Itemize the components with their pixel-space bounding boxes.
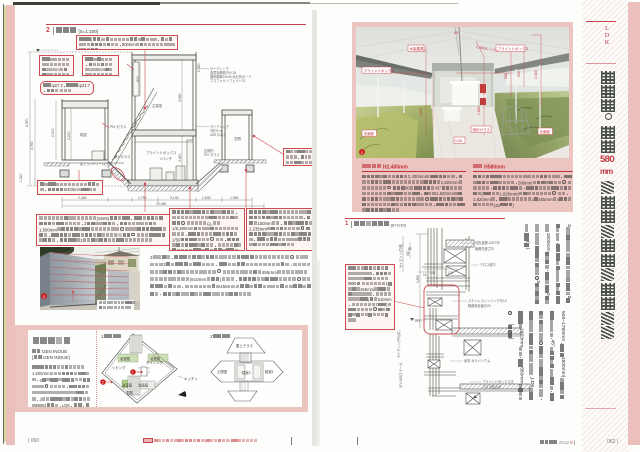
svg-text:管置先遮ざ⑮: 管置先遮ざ⑮ <box>475 246 495 251</box>
svg-text:105: 105 <box>430 271 436 275</box>
svg-text:900: 900 <box>517 71 521 77</box>
svg-text:2,400: 2,400 <box>78 196 87 200</box>
svg-text:1,750: 1,750 <box>138 196 147 200</box>
svg-text:引抜金物 120°OP: 引抜金物 120°OP <box>475 240 500 245</box>
svg-text:サイディング2枚: サイディング2枚 <box>398 243 403 268</box>
svg-text:1ベンチ: 1ベンチ <box>160 156 173 161</box>
svg-text:PIX ガラス: PIX ガラス <box>114 154 131 159</box>
svg-text:PIX ガラス: PIX ガラス <box>110 124 127 129</box>
svg-text:83: 83 <box>408 247 412 251</box>
svg-text:浴室庭: 浴室庭 <box>120 356 131 361</box>
svg-text:木製建具: 木製建具 <box>410 46 424 51</box>
svg-text:580: 580 <box>504 73 508 79</box>
svg-text:3,130: 3,130 <box>170 196 179 200</box>
svg-text:クロス張り: クロス張り <box>480 262 496 267</box>
svg-text:土間室: 土間室 <box>217 369 228 374</box>
svg-text:1,820: 1,820 <box>477 106 481 115</box>
svg-text:120: 120 <box>448 271 454 275</box>
svg-text:強化ガラス: 強化ガラス <box>473 127 491 132</box>
svg-text:アスファルトフェルト22: アスファルトフェルト22 <box>210 78 246 83</box>
svg-text:捨てコンクリート打-60: 捨てコンクリート打-60 <box>80 161 112 166</box>
svg-text:2,300: 2,300 <box>51 128 55 137</box>
svg-text:2FL+900ステール: 2FL+900ステール <box>398 362 403 388</box>
svg-text:PIX ガラス: PIX ガラス <box>204 152 220 157</box>
svg-text:2FL: 2FL <box>415 319 421 323</box>
svg-text:10,480: 10,480 <box>156 202 166 206</box>
svg-text:玄関: 玄関 <box>126 390 133 395</box>
svg-text:キッチン: キッチン <box>184 376 198 381</box>
svg-text:LDK: LDK <box>456 139 463 143</box>
svg-text:16: 16 <box>423 273 427 277</box>
svg-text:6,470: 6,470 <box>25 118 29 127</box>
svg-text:3,540: 3,540 <box>178 93 182 102</box>
svg-text:3,740: 3,740 <box>30 141 34 150</box>
svg-text:ステンレスハンジング⑮12: ステンレスハンジング⑮12 <box>468 298 507 303</box>
svg-text:ブラインドボックス: ブラインドボックス <box>146 150 177 155</box>
svg-text:法面庭: 法面庭 <box>540 129 551 134</box>
svg-text:ダイニング: ダイニング <box>146 360 164 365</box>
svg-text:主寝室: 主寝室 <box>152 103 163 108</box>
svg-text:構造用合板⑮24: 構造用合板⑮24 <box>468 303 491 308</box>
svg-text:2: 2 <box>102 381 104 385</box>
svg-text:45: 45 <box>454 31 458 35</box>
svg-text:寝室2: 寝室2 <box>242 370 251 375</box>
svg-text:1,520: 1,520 <box>19 173 23 182</box>
svg-text:ブラインドボックス: ブラインドボックス <box>364 68 396 73</box>
svg-text:法面庭: 法面庭 <box>364 131 375 136</box>
svg-text:洗面庭: 洗面庭 <box>138 383 149 388</box>
svg-text:浴室庭: 浴室庭 <box>122 383 133 388</box>
svg-text:2,550: 2,550 <box>197 63 201 72</box>
svg-text:寝室: 寝室 <box>80 132 87 137</box>
svg-text:1: 1 <box>132 371 134 375</box>
svg-text:サイディング⑮(中): サイディング⑮(中) <box>396 331 401 358</box>
svg-text:屋上テラス: 屋上テラス <box>236 343 253 348</box>
svg-text:910: 910 <box>406 250 410 256</box>
svg-text:玄関: 玄関 <box>234 136 241 141</box>
svg-text:寝室1: 寝室1 <box>265 369 274 374</box>
svg-text:2,200: 2,200 <box>67 131 71 140</box>
svg-text:1,800: 1,800 <box>416 275 420 283</box>
svg-text:2,400: 2,400 <box>178 153 182 162</box>
svg-text:ブラインドボックス: ブラインドボックス <box>498 46 530 51</box>
svg-text:AIW の高さ: AIW の高さ <box>210 132 226 137</box>
svg-text:1,600: 1,600 <box>202 196 211 200</box>
svg-text:赤字:ガルバリウム: 赤字:ガルバリウム <box>464 358 490 363</box>
svg-text:800: 800 <box>136 76 140 82</box>
svg-text:リビング: リビング <box>112 365 126 370</box>
svg-text:1,820: 1,820 <box>419 108 423 117</box>
svg-text:1,550: 1,550 <box>230 196 239 200</box>
svg-text:2,400: 2,400 <box>534 70 538 79</box>
